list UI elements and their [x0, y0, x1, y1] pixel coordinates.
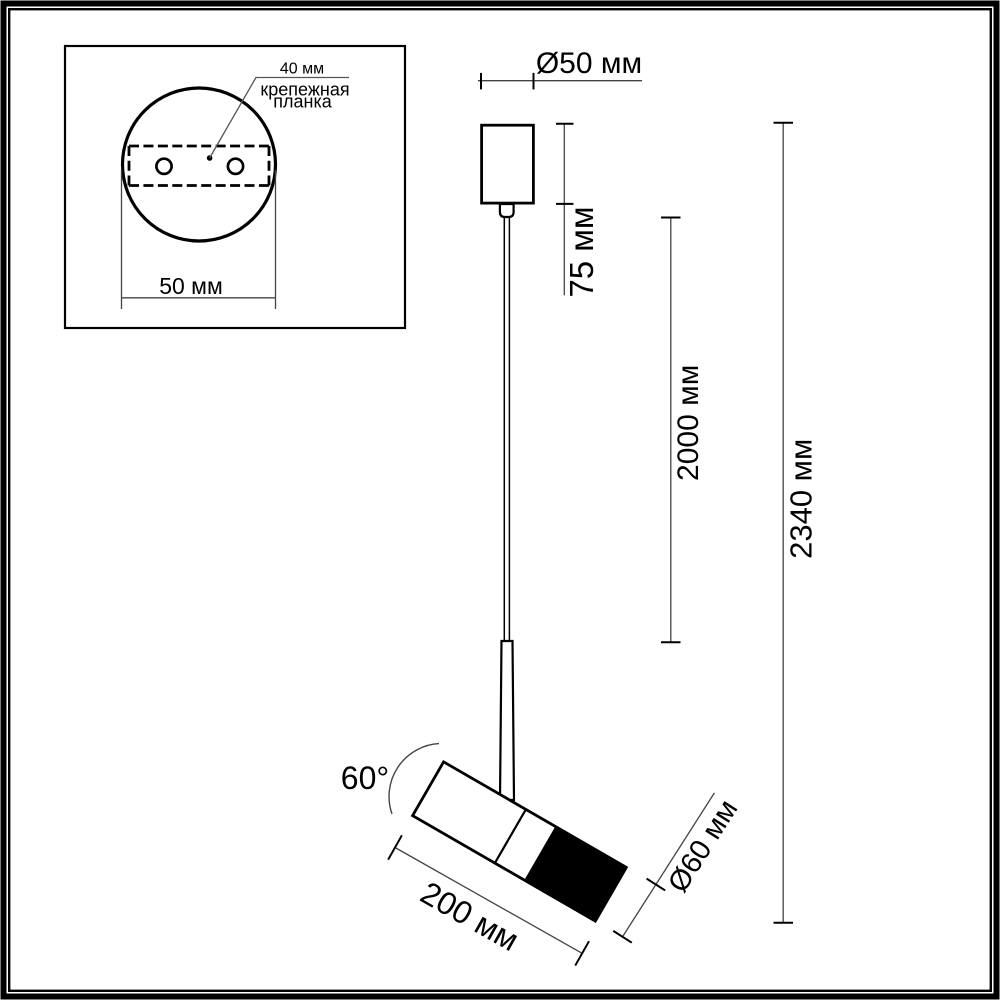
svg-text:60°: 60° [341, 760, 389, 796]
svg-text:50 мм: 50 мм [159, 273, 223, 299]
svg-text:2000 мм: 2000 мм [672, 365, 705, 481]
svg-text:40 мм: 40 мм [280, 61, 324, 78]
svg-text:планка: планка [273, 92, 332, 112]
svg-text:2340 мм: 2340 мм [783, 439, 818, 559]
svg-text:Ø50 мм: Ø50 мм [536, 47, 642, 80]
svg-text:75 мм: 75 мм [563, 206, 600, 297]
